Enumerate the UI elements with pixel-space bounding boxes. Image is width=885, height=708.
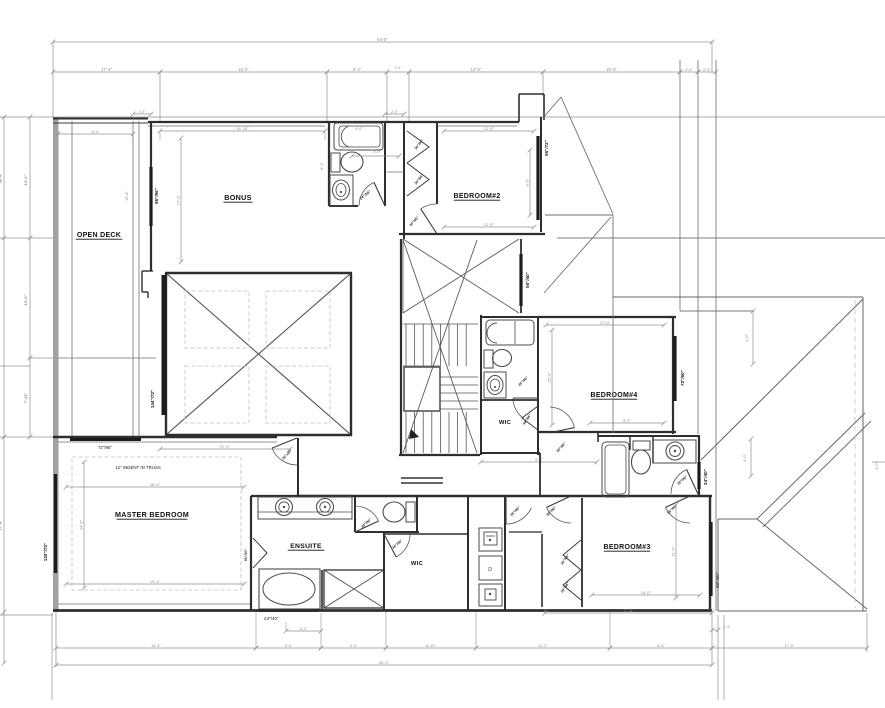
svg-text:BEDROOM#4: BEDROOM#4: [590, 392, 637, 399]
svg-text:9'-0": 9'-0": [525, 178, 530, 187]
svg-text:3'-0": 3'-0": [875, 462, 879, 470]
svg-text:5'-4": 5'-4": [350, 644, 358, 648]
svg-text:96"/96": 96"/96": [154, 188, 159, 204]
svg-text:56"/40": 56"/40": [525, 272, 530, 288]
svg-text:15'-4": 15'-4": [606, 67, 617, 72]
svg-text:17'-0": 17'-0": [785, 644, 795, 648]
svg-text:14'-0": 14'-0": [79, 519, 84, 530]
svg-text:9'-4": 9'-4": [92, 129, 101, 134]
svg-text:D: D: [488, 567, 492, 573]
svg-text:12'-0": 12'-0": [471, 67, 482, 72]
svg-text:WIC: WIC: [499, 420, 512, 426]
svg-text:12'-0": 12'-0": [484, 126, 495, 131]
svg-text:64'-0": 64'-0": [379, 660, 390, 665]
svg-text:1'-4": 1'-4": [723, 625, 731, 629]
svg-text:12" INDENT IN TRUSS: 12" INDENT IN TRUSS: [115, 465, 161, 470]
svg-text:96"/30": 96"/30": [244, 549, 248, 562]
svg-text:17'-0": 17'-0": [600, 320, 611, 325]
svg-text:16'-8": 16'-8": [125, 191, 129, 201]
svg-text:4.8"/40": 4.8"/40": [264, 616, 279, 621]
svg-text:0'-6": 0'-6": [703, 68, 711, 72]
svg-text:2'-0": 2'-0": [685, 68, 693, 72]
svg-text:144"/72": 144"/72": [150, 390, 155, 408]
svg-text:5'-4": 5'-4": [285, 644, 293, 648]
svg-text:ENSUITE: ENSUITE: [290, 543, 322, 550]
svg-text:11'-2": 11'-2": [538, 644, 548, 648]
svg-text:6'-0": 6'-0": [355, 127, 363, 131]
svg-text:WIC: WIC: [411, 561, 424, 567]
svg-text:6'-4": 6'-4": [353, 67, 362, 72]
svg-text:7'-11": 7'-11": [23, 393, 28, 404]
svg-text:14'-0": 14'-0": [641, 590, 652, 595]
svg-text:17'-1": 17'-1": [176, 194, 181, 205]
svg-text:11'-2": 11'-2": [671, 546, 676, 556]
svg-text:120"/72": 120"/72": [43, 543, 48, 561]
svg-text:4'-0": 4'-0": [745, 334, 749, 342]
svg-text:16'-10": 16'-10": [236, 126, 249, 131]
svg-text:12'-0": 12'-0": [23, 294, 28, 305]
svg-text:8'-4": 8'-4": [320, 162, 324, 170]
svg-text:96"/72": 96"/72": [544, 140, 549, 156]
svg-text:2'-0": 2'-0": [139, 110, 147, 114]
svg-text:8'-10": 8'-10": [426, 644, 436, 648]
svg-text:19'-4": 19'-4": [151, 644, 161, 648]
svg-text:9'-2": 9'-2": [623, 418, 632, 423]
svg-text:15'-4": 15'-4": [547, 372, 552, 383]
svg-text:16'-4": 16'-4": [238, 67, 249, 72]
svg-text:16'-4": 16'-4": [150, 482, 161, 487]
svg-text:19'-4": 19'-4": [150, 579, 161, 584]
svg-text:27'-0": 27'-0": [220, 444, 231, 449]
svg-text:BEDROOM#2: BEDROOM#2: [453, 193, 500, 200]
svg-text:72"/60": 72"/60": [680, 370, 685, 386]
svg-text:BONUS: BONUS: [224, 193, 251, 202]
svg-text:24"/40": 24"/40": [703, 469, 708, 485]
svg-text:17'-4": 17'-4": [101, 67, 112, 72]
svg-text:OPEN DECK: OPEN DECK: [77, 232, 121, 239]
svg-text:16'-4": 16'-4": [0, 172, 3, 183]
svg-text:2'-4": 2'-4": [395, 66, 403, 70]
svg-text:17'-4": 17'-4": [624, 609, 634, 613]
svg-text:72"/96": 72"/96": [98, 445, 113, 450]
svg-text:4'-0": 4'-0": [373, 150, 381, 154]
svg-text:17'-6": 17'-6": [0, 519, 3, 530]
svg-text:BEDROOM#3: BEDROOM#3: [603, 544, 650, 551]
svg-text:8'-6": 8'-6": [657, 644, 665, 648]
svg-text:5'-2": 5'-2": [300, 627, 308, 631]
svg-text:12'-1": 12'-1": [23, 174, 28, 185]
svg-text:4'-0": 4'-0": [743, 454, 747, 462]
svg-text:MASTER BEDROOM: MASTER BEDROOM: [115, 510, 189, 519]
svg-text:12'-0": 12'-0": [484, 222, 495, 227]
svg-text:64'-0": 64'-0": [377, 37, 388, 42]
svg-text:2'-0": 2'-0": [391, 110, 399, 114]
